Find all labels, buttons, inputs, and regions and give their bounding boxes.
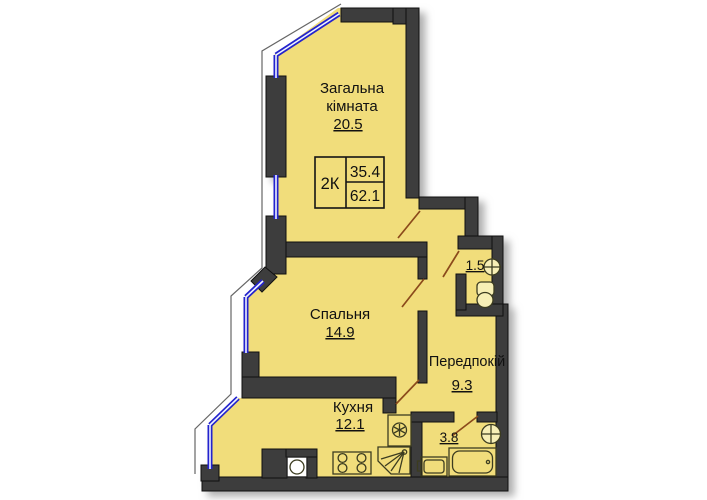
hallway-label: Передпокій <box>429 354 505 370</box>
wall-bedroom-hall <box>418 311 427 383</box>
wall-kitchen-top-stub <box>383 398 396 413</box>
wall-wc-left <box>456 274 466 310</box>
wall-living-right <box>406 8 419 198</box>
wall-kitchen-niche-top <box>286 449 317 457</box>
kitchen-area: 12.1 <box>335 416 364 433</box>
wall-right-lower <box>496 304 508 491</box>
wall-bathroom-top-left <box>411 412 454 422</box>
living-room-label: Загальна <box>320 80 385 97</box>
living-room-label2: кімната <box>326 98 378 115</box>
wc-area: 1.5 <box>466 258 485 273</box>
wall-bottom <box>202 477 508 491</box>
hallway-area: 9.3 <box>452 377 473 394</box>
kitchen-label: Кухня <box>333 399 373 416</box>
apartment-type-label: 2К <box>321 175 340 193</box>
wall-kitchen-niche-left <box>262 449 287 478</box>
wall-bedroom-hall-stub <box>418 257 427 279</box>
wall-kitchen-top <box>242 377 396 398</box>
apartment-body: 2К 35.4 62.1 Загальна кімната 20.5 Спаль… <box>201 8 508 491</box>
floor-plan-page: 2К 35.4 62.1 Загальна кімната 20.5 Спаль… <box>0 0 707 500</box>
wall-left-pier <box>266 76 286 177</box>
bathroom-area: 3.8 <box>440 430 459 445</box>
wall-living-bedroom-divider <box>277 242 427 257</box>
total-area-value: 62.1 <box>350 188 380 205</box>
floor-plan-svg: 2К 35.4 62.1 Загальна кімната 20.5 Спаль… <box>0 0 707 500</box>
toilet-bowl-icon <box>477 293 493 308</box>
bedroom-area: 14.9 <box>325 324 354 341</box>
wall-bathroom-top-right <box>477 412 497 422</box>
living-room-area: 20.5 <box>333 116 362 133</box>
wall-left-corner <box>266 216 286 274</box>
living-area-value: 35.4 <box>350 164 381 181</box>
bedroom-label: Спальня <box>310 306 370 323</box>
